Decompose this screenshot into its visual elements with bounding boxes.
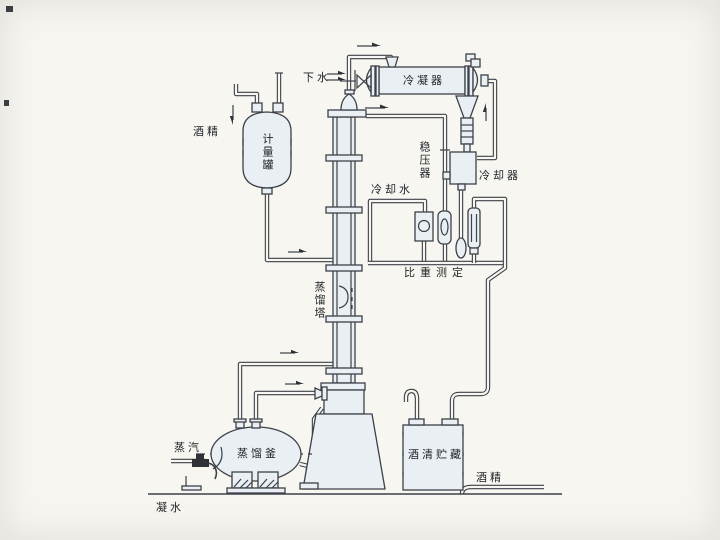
float-bulb <box>456 238 466 258</box>
diagram-linework <box>0 0 720 540</box>
process-diagram: 下水 冷凝器 稳压器 冷却器 冷却水 比重测定 酒精 计量罐 蒸馏塔 蒸汽 蒸馏… <box>0 0 720 540</box>
vapor-separator-stack <box>456 96 478 152</box>
label-alcohol-feed: 酒精 <box>193 125 221 138</box>
label-drain-water: 下水 <box>303 71 331 84</box>
label-condenser: 冷凝器 <box>402 74 446 87</box>
label-cooler: 冷却器 <box>479 169 521 182</box>
label-alcohol-storage: 酒清贮藏 <box>408 448 464 461</box>
kettle-supports <box>227 472 318 493</box>
label-cooling-water: 冷却水 <box>371 183 413 196</box>
scan-speck <box>6 6 13 12</box>
label-specific-gravity: 比重测定 <box>404 266 468 279</box>
label-alcohol-product: 酒精 <box>476 471 504 484</box>
hydrometer-tube-2 <box>468 208 480 254</box>
label-steam: 蒸汽 <box>174 441 202 454</box>
label-distillation-kettle: 蒸馏釜 <box>236 447 280 460</box>
hydrometer-tube-1 <box>438 211 451 244</box>
label-condensate: 凝水 <box>156 501 184 514</box>
label-distillation-tower: 蒸馏塔 <box>313 281 326 320</box>
cooler-vessel <box>443 152 476 190</box>
sight-glass-device <box>415 212 433 241</box>
label-metering-tank: 计量罐 <box>260 133 275 172</box>
scan-speck <box>4 100 9 106</box>
label-pressure-stabilizer: 稳压器 <box>418 141 431 180</box>
